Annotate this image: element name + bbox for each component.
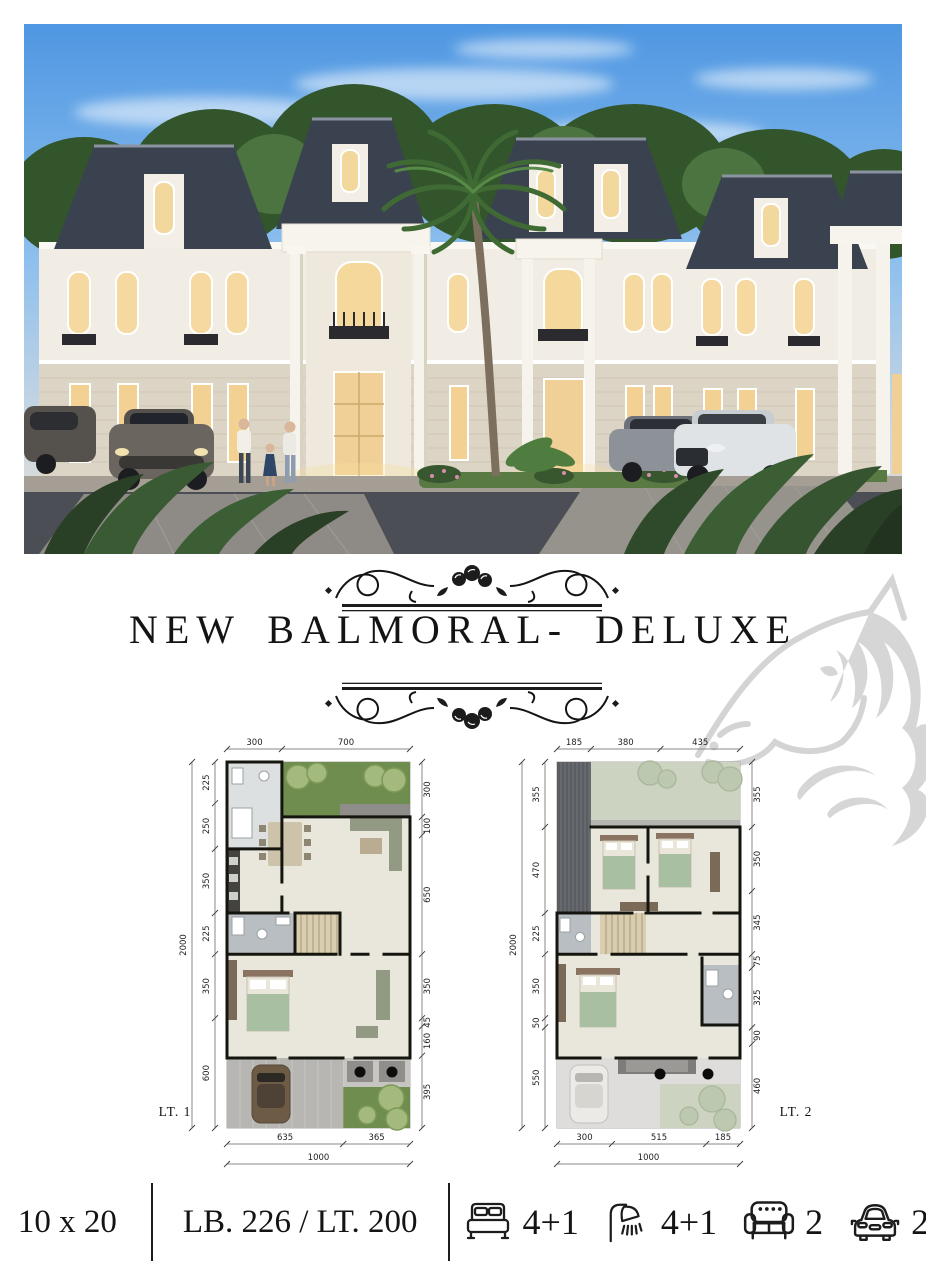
- dim-label: 635: [277, 1133, 293, 1143]
- brochure-page: NEW BALMORAL- DELUXE: [0, 0, 926, 1280]
- dim-label: 350: [532, 978, 542, 994]
- dim-label: 160: [423, 1033, 433, 1049]
- dim-label: 75: [753, 956, 763, 967]
- car-icon: [849, 1200, 901, 1244]
- livingroom-count: 2: [805, 1201, 823, 1243]
- building-area: LB. 226 / LT. 200: [183, 1204, 418, 1241]
- dim-label: 2000: [179, 934, 189, 956]
- dim-label: 460: [753, 1078, 763, 1094]
- dim-label: 185: [715, 1133, 731, 1143]
- plan2-label: LT. 2: [780, 1104, 813, 1119]
- dim-label: 50: [532, 1017, 542, 1028]
- floorplan-lt2: 185 380 435 355 470 225 350 50 550 2000 …: [500, 732, 830, 1178]
- plan1-label: LT. 1: [159, 1104, 192, 1119]
- hero-illustration: [24, 24, 902, 554]
- bathroom-count: 4+1: [661, 1201, 717, 1243]
- flourish-ornament-bottom: [312, 676, 632, 734]
- livingroom-spec: 2: [743, 1200, 823, 1244]
- dim-label: 225: [202, 925, 212, 941]
- dim-label: 365: [368, 1133, 384, 1143]
- dim-label: 45: [423, 1017, 433, 1028]
- bathroom-spec: 4+1: [605, 1199, 717, 1245]
- dim-label: 1000: [638, 1153, 660, 1163]
- dim-label: 435: [692, 738, 708, 748]
- bedroom-count: 4+1: [523, 1201, 579, 1243]
- dim-label: 600: [202, 1065, 212, 1081]
- dim-label: 90: [753, 1030, 763, 1041]
- spec-bar: 10 x 20 LB. 226 / LT. 200 4+1: [0, 1183, 926, 1261]
- dim-label: 300: [246, 738, 262, 748]
- dim-label: 470: [532, 862, 542, 878]
- lot-size: 10 x 20: [18, 1204, 117, 1241]
- carport-spec: 2: [849, 1200, 926, 1244]
- carport-count: 2: [911, 1201, 926, 1243]
- dim-label: 300: [423, 781, 433, 797]
- dim-label: 345: [753, 914, 763, 930]
- dim-label: 395: [423, 1084, 433, 1100]
- plan2-art: [557, 761, 742, 1131]
- dim-label: 225: [202, 774, 212, 790]
- shower-icon: [605, 1199, 651, 1245]
- hero-photo: [24, 24, 902, 554]
- dim-label: 350: [753, 851, 763, 867]
- dim-label: 355: [753, 786, 763, 802]
- dim-label: 325: [753, 989, 763, 1005]
- dim-label: 550: [532, 1070, 542, 1086]
- dim-label: 100: [423, 818, 433, 834]
- spec-divider: [448, 1183, 450, 1261]
- dim-label: 350: [202, 978, 212, 994]
- bedroom-spec: 4+1: [463, 1200, 579, 1244]
- dim-label: 515: [651, 1133, 667, 1143]
- dim-label: 350: [423, 978, 433, 994]
- dim-label: 300: [576, 1133, 592, 1143]
- dim-label: 1000: [308, 1153, 330, 1163]
- dim-label: 700: [338, 738, 354, 748]
- plan1-art: [227, 762, 410, 1130]
- dim-label: 185: [566, 738, 582, 748]
- dim-label: 225: [532, 925, 542, 941]
- spec-divider: [151, 1183, 153, 1261]
- floorplan-lt1: 300 700 225 250 350 225 350 600 2000 300…: [140, 732, 460, 1178]
- dim-label: 250: [202, 818, 212, 834]
- dim-label: 350: [202, 873, 212, 889]
- sofa-icon: [743, 1200, 795, 1244]
- dim-label: 380: [617, 738, 633, 748]
- bed-icon: [463, 1200, 513, 1244]
- dim-label: 2000: [509, 934, 519, 956]
- dim-label: 650: [423, 887, 433, 903]
- dim-label: 355: [532, 786, 542, 802]
